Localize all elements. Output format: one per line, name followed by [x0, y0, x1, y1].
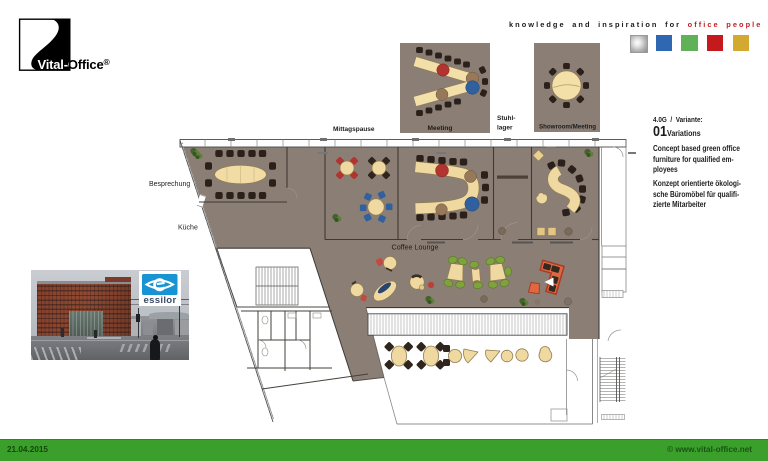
- svg-text:Mittagspause: Mittagspause: [333, 126, 375, 133]
- svg-text:Showroom/Meeting: Showroom/Meeting: [539, 124, 596, 131]
- svg-text:lager: lager: [497, 125, 513, 132]
- svg-text:Stuhl-: Stuhl-: [497, 115, 515, 122]
- svg-text:Meeting: Meeting: [428, 125, 453, 132]
- svg-text:Besprechung: Besprechung: [149, 181, 190, 188]
- svg-text:Coffee Lounge: Coffee Lounge: [392, 243, 439, 252]
- svg-text:Küche: Küche: [178, 225, 198, 232]
